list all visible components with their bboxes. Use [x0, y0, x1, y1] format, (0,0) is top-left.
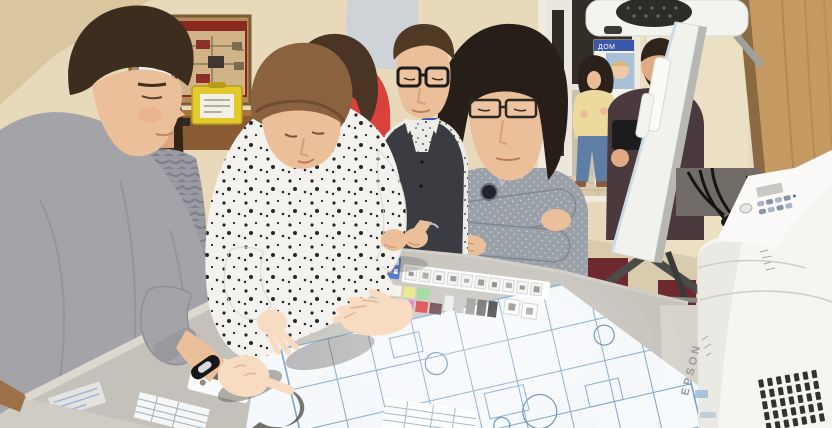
photo-canvas: ДОМ [0, 0, 832, 428]
projector-sticker [695, 390, 708, 398]
yellow-case [192, 82, 242, 124]
boy3-glasses [398, 68, 420, 86]
photographer-hand [611, 149, 629, 167]
banner-title: ДОМ [598, 44, 616, 51]
boy4-hand [541, 209, 571, 231]
woman-face [587, 71, 601, 89]
case-handle [208, 82, 226, 88]
wristwatch [481, 184, 497, 200]
projector-lens [604, 26, 622, 34]
boy4-glasses [470, 100, 500, 117]
